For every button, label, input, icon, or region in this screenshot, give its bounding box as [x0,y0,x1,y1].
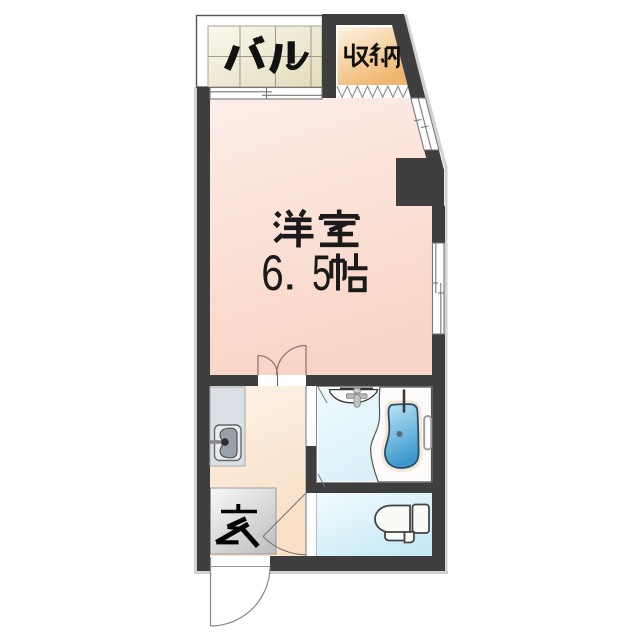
svg-text:5: 5 [312,245,331,301]
svg-text:6: 6 [261,245,284,301]
